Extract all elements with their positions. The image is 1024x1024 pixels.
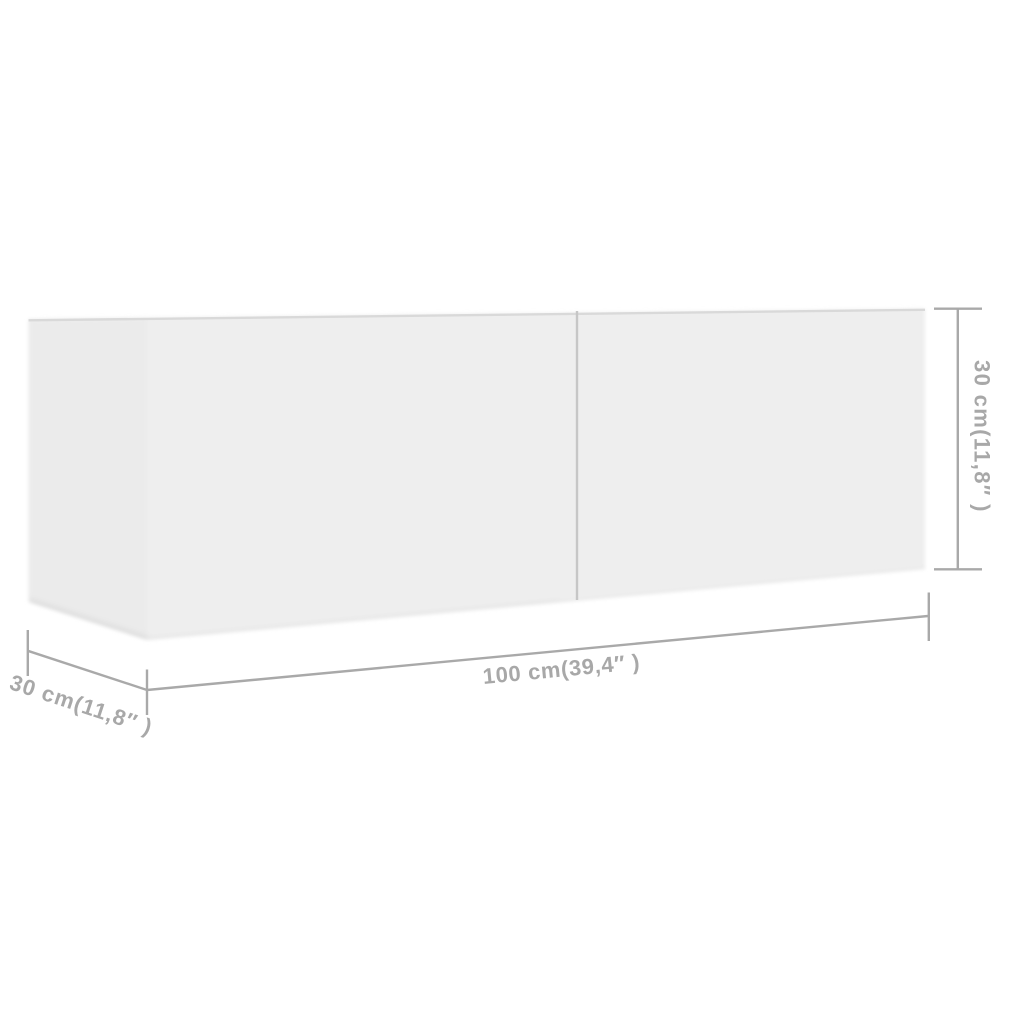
- svg-text:30 cm(11,8″ ): 30 cm(11,8″ ): [970, 360, 995, 513]
